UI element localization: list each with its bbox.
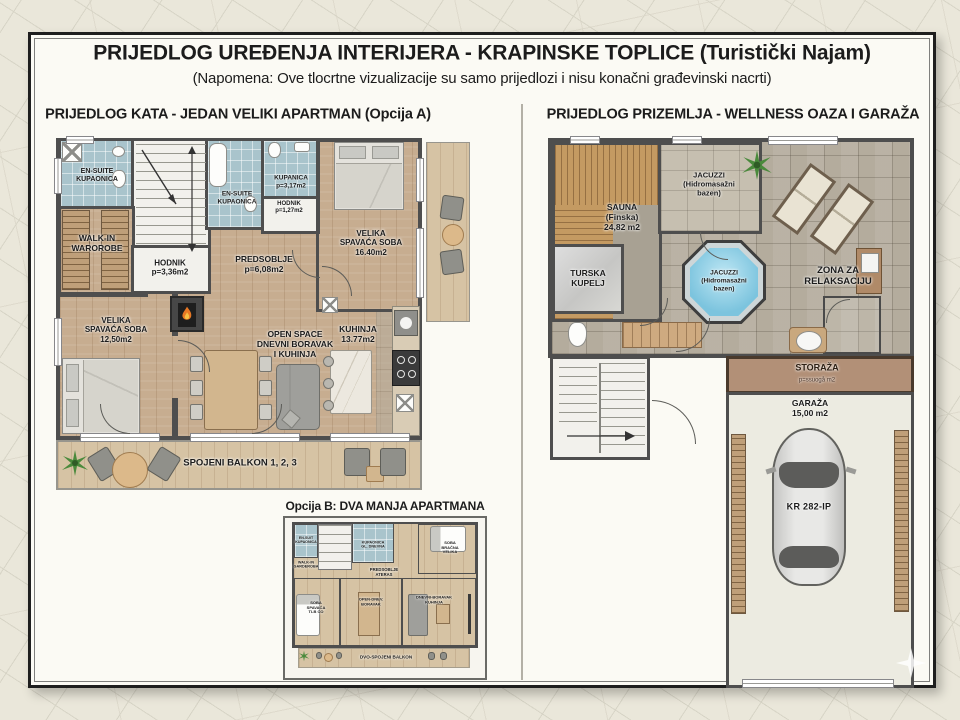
room-label-turska: TURSKA KUPELJ bbox=[570, 268, 605, 288]
shower-ensuite-1 bbox=[62, 142, 82, 162]
room-label-open-space: OPEN SPACE DNEVNI BORAVAK I KUHINJA bbox=[257, 329, 333, 359]
staircase-g-arrow bbox=[561, 421, 643, 451]
room-label-ensuite-2: EN-SUITE KUPAONICA bbox=[218, 190, 257, 205]
garage-shelves-left bbox=[731, 434, 746, 614]
window bbox=[768, 136, 838, 145]
sink-basin bbox=[796, 331, 822, 351]
bar-stool bbox=[323, 400, 334, 411]
sink-wellness bbox=[789, 327, 827, 353]
kitchen-island bbox=[330, 350, 372, 414]
burner bbox=[408, 356, 416, 364]
bed-large bbox=[334, 142, 404, 210]
room-label-kupanica: KUPANICA p=3,17m2 bbox=[274, 174, 308, 189]
plan-b-label-balkon: DVO-SPOJENI BALKON bbox=[360, 654, 412, 659]
room-label-hodnik-2: HODNIK p=1,27m2 bbox=[275, 201, 303, 215]
plan-b-staircase bbox=[318, 524, 352, 570]
balcony-table-round bbox=[442, 224, 464, 246]
plan-b-header: Opcija B: DVA MANJA APARTMANA bbox=[285, 499, 484, 513]
plan-b-label-ensuite: EN-SUIT KUPAONICA bbox=[295, 536, 317, 544]
room-label-zona: ZONA ZA RELAKSACIJU bbox=[804, 265, 872, 287]
plan-a-living-wall-lower bbox=[172, 398, 178, 438]
shower-room bbox=[823, 296, 881, 354]
plan-b-balcony-chair bbox=[428, 652, 435, 660]
room-label-bedroom-small: VELIKA SPAVAĆA SOBA 12,50m2 bbox=[85, 316, 147, 344]
storage-strip bbox=[726, 356, 914, 394]
page-subtitle: (Napomena: Ove tlocrtne vizualizacije su… bbox=[193, 70, 772, 88]
plant-icon bbox=[740, 148, 774, 182]
room-label-ensuite-1: EN-SUITE KUPAONICA bbox=[76, 168, 118, 185]
plant-icon bbox=[298, 650, 310, 662]
staircase-a-arrows bbox=[134, 142, 208, 256]
balcony-chair bbox=[380, 448, 406, 476]
appliance-box bbox=[322, 297, 338, 313]
watermark-star-icon bbox=[896, 648, 926, 678]
bar-stool bbox=[323, 378, 334, 389]
window bbox=[416, 158, 424, 202]
pillow bbox=[66, 399, 79, 427]
window bbox=[66, 136, 94, 144]
sink-bowl bbox=[400, 317, 412, 329]
fireplace bbox=[170, 296, 204, 332]
plan-b-balcony-chair bbox=[336, 652, 342, 659]
room-label-storaza-sub: p=ssuogå m2 bbox=[799, 377, 835, 384]
toilet-wellness bbox=[568, 322, 587, 347]
plant-icon bbox=[60, 448, 90, 478]
flame-icon bbox=[180, 305, 194, 325]
toilet-kupanica bbox=[268, 142, 281, 158]
window bbox=[330, 433, 410, 442]
pillow bbox=[66, 364, 79, 392]
garage-shelves-right bbox=[894, 430, 909, 612]
plan-b-label-soba-dnevna: SOBA SPAVAĆA TLB CO bbox=[307, 601, 326, 615]
dining-chair bbox=[259, 380, 272, 396]
plan-b-label-soba-velika: SOBA BRAČNA VELIKA bbox=[441, 541, 458, 555]
burner bbox=[397, 356, 405, 364]
room-label-walkin: WALK-IN WAROROBE bbox=[72, 233, 123, 253]
page-title: PRIJEDLOG UREĐENJA INTERIJERA - KRAPINSK… bbox=[93, 42, 871, 67]
plan-b-balcony-chair bbox=[440, 652, 447, 660]
car-rear-window bbox=[779, 546, 839, 568]
room-label-storaza: STORAŽA bbox=[795, 363, 838, 374]
poster-canvas: PRIJEDLOG UREĐENJA INTERIJERA - KRAPINSK… bbox=[0, 0, 960, 720]
blanket bbox=[336, 163, 402, 208]
plan-prizemlje-header: PRIJEDLOG PRIZEMLJA - WELLNESS OAZA I GA… bbox=[547, 106, 920, 123]
room-label-sauna: SAUNA (Finska) 24,82 m2 bbox=[604, 202, 640, 232]
room-label-jacuzzi-room: JACUZZI (Hidromasažni bazen) bbox=[683, 172, 735, 199]
dining-chair bbox=[190, 380, 203, 396]
plan-b-balcony-table bbox=[324, 653, 333, 662]
sauna-bench-top bbox=[555, 145, 659, 205]
appliance-box bbox=[396, 394, 414, 412]
dining-chair bbox=[190, 404, 203, 420]
window bbox=[80, 433, 160, 442]
window bbox=[672, 136, 702, 144]
plan-a-header: PRIJEDLOG KATA - JEDAN VELIKI APARTMAN (… bbox=[45, 106, 431, 123]
pillow bbox=[339, 146, 366, 159]
staircase-g-room bbox=[550, 356, 650, 460]
window bbox=[54, 318, 62, 366]
stove bbox=[392, 350, 420, 386]
sink-kupanica bbox=[294, 142, 310, 152]
window bbox=[54, 158, 62, 194]
room-label-bedroom-large: VELIKA SPAVAĆA SOBA 16.40m2 bbox=[340, 229, 402, 257]
room-label-kuhinja: KUHINJA 13.77m2 bbox=[339, 324, 377, 344]
staircase-g-flight-left bbox=[559, 367, 597, 423]
pillow bbox=[372, 146, 399, 159]
room-label-garaza: GARAŽA 15,00 m2 bbox=[792, 398, 828, 418]
garage-door bbox=[742, 679, 894, 688]
car-windshield bbox=[779, 462, 839, 488]
plan-b-label-dnevni-2: DNEVNI-BORAVAK KUHINJA bbox=[416, 595, 452, 604]
burner bbox=[397, 370, 405, 378]
balcony-table-round bbox=[112, 452, 148, 488]
room-label-jacuzzi-pool: JACUZZI (Hidromasažni bazen) bbox=[701, 269, 746, 292]
plan-b-balcony-chair bbox=[316, 652, 322, 659]
balcony-chair bbox=[439, 195, 464, 222]
plan-b-label-kupaonica: KUPAONICA GL. DNEVNA bbox=[361, 541, 384, 550]
window bbox=[190, 433, 300, 442]
bathtub-ensuite-2 bbox=[209, 143, 227, 187]
plan-b-label-dnevni-1: OPEN-DNEV. BORAVAK bbox=[359, 597, 384, 606]
window bbox=[570, 136, 600, 144]
plan-b-tv bbox=[468, 594, 471, 634]
dining-table bbox=[204, 350, 258, 430]
burner bbox=[408, 370, 416, 378]
plan-b-label-garderoba: WALK-IN GARDEROBA bbox=[294, 561, 319, 570]
plan-b-label-predsoblje: PREDSOBLJE ATERAS bbox=[370, 568, 398, 578]
room-label-predsoblje: PREDSOBLJE p=6,08m2 bbox=[235, 254, 293, 274]
car-license-plate: KR 282-IP bbox=[787, 502, 832, 513]
room-label-hodnik-1: HODNIK p=3,36m2 bbox=[152, 259, 189, 278]
sink-ensuite-1 bbox=[112, 146, 125, 157]
plan-b-coffee-table bbox=[436, 604, 450, 624]
plan-a-bedroom-small-wall bbox=[56, 292, 148, 297]
room-label-balkon: SPOJENI BALKON 1, 2, 3 bbox=[183, 457, 297, 468]
window bbox=[416, 228, 424, 298]
kitchen-sink-unit bbox=[394, 310, 418, 336]
section-divider bbox=[521, 104, 523, 680]
balcony-chair bbox=[439, 249, 464, 276]
